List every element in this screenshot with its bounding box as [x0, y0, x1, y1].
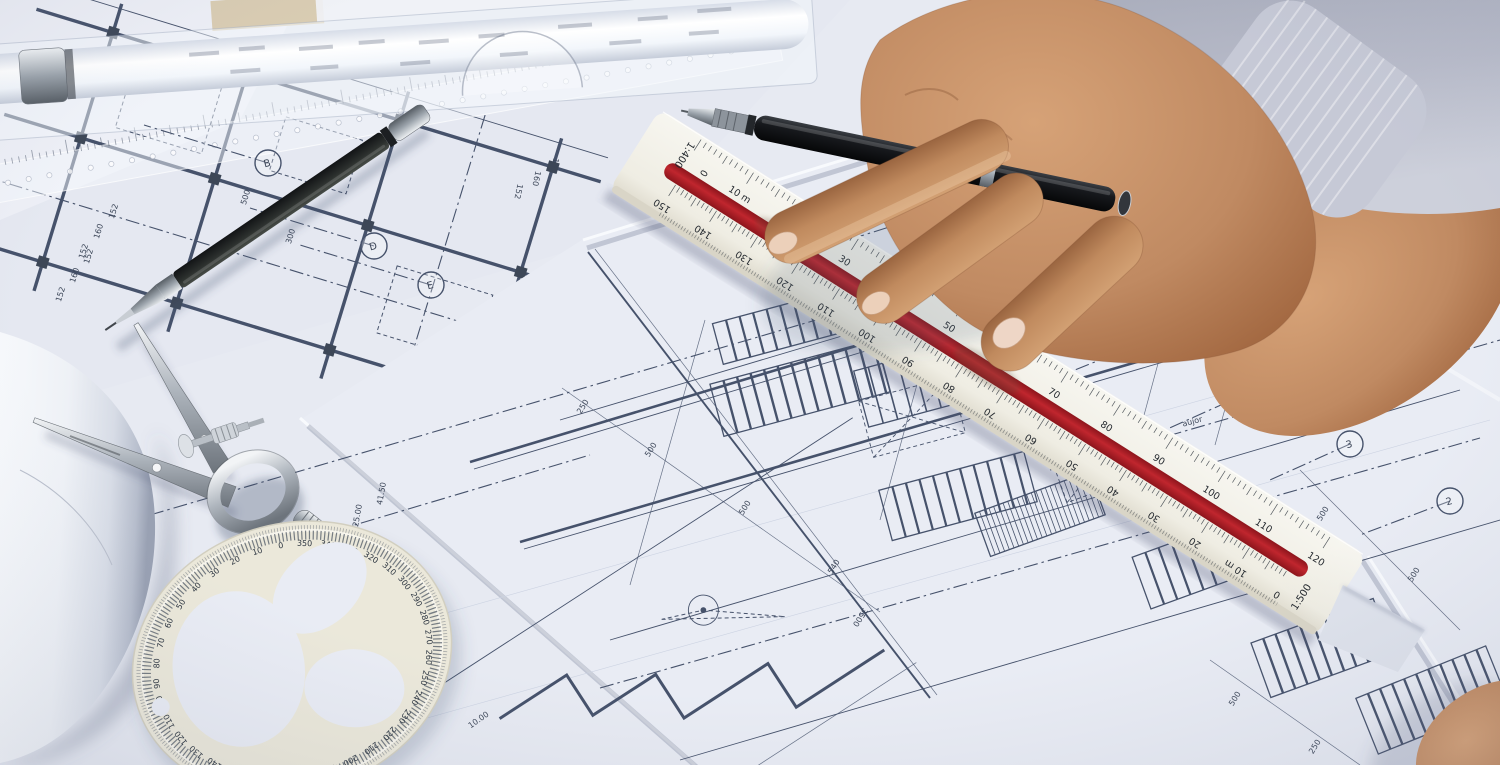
- vignette-overlay: [0, 0, 1500, 765]
- photo-architect-workspace: 2505005005405005005002505005003500aujor1…: [0, 0, 1500, 765]
- scene-canvas: 2505005005405005005002505005003500aujor1…: [0, 0, 1500, 765]
